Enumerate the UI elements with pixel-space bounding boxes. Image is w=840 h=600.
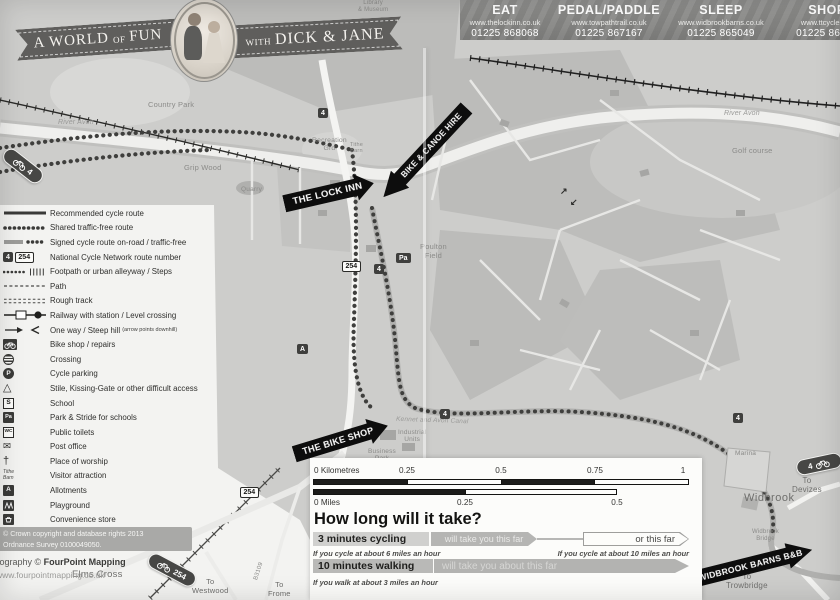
legend-item: Pa Park & Stride for schools bbox=[3, 410, 215, 425]
label-to-devizes: To Devizes bbox=[792, 476, 822, 494]
legend-item: A Allotments bbox=[3, 483, 215, 498]
legend-item: One way / Steep hill (arrow points downh… bbox=[3, 323, 215, 338]
contact-eat: EAT www.thelockinn.co.uk 01225 868068 bbox=[460, 0, 550, 40]
park-stride-badge: Pa bbox=[396, 253, 411, 263]
legend-label: Public toilets bbox=[50, 428, 94, 437]
legend-label: One way / Steep hill bbox=[50, 326, 120, 335]
legend-label: Visitor attraction bbox=[50, 471, 106, 480]
crown-copyright-line2: Ordnance Survey 0100049050. bbox=[3, 540, 192, 551]
bicycle-icon bbox=[156, 559, 173, 574]
legend-label: Cycle parking bbox=[50, 369, 98, 378]
legend-item: Bike shop / repairs bbox=[3, 337, 215, 352]
legend-label: Park & Stride for schools bbox=[50, 413, 137, 422]
legend-item: Railway with station / Level crossing bbox=[3, 308, 215, 323]
recommended-route-line-icon bbox=[3, 208, 50, 218]
legend-item: Rough track bbox=[3, 294, 215, 309]
cycling-note-right: If you cycle at about 10 miles an hour bbox=[540, 549, 689, 558]
legend-label: Post office bbox=[50, 442, 87, 451]
label-river-avon-east: River Avon bbox=[724, 110, 760, 118]
legend-label: Playground bbox=[50, 501, 90, 510]
legend-item: Signed cycle route on-road / traffic-fre… bbox=[3, 235, 215, 250]
legend-item: Playground bbox=[3, 498, 215, 513]
rough-track-line-icon bbox=[3, 296, 50, 306]
miles-scale-label: 0 Miles bbox=[314, 498, 340, 507]
contact-website: www.towpathtrail.co.uk bbox=[550, 18, 668, 27]
route-254-badge: 254 bbox=[342, 261, 361, 272]
label-grip-wood: Grip Wood bbox=[184, 164, 222, 173]
contact-phone: 01225 868068 bbox=[460, 28, 550, 39]
route-number: 254 bbox=[172, 567, 188, 581]
label-library-museum: Library & Museum bbox=[358, 0, 388, 14]
contact-phone: 01225 86718 bbox=[774, 28, 840, 39]
scale-and-timing-panel: 0 Kilometres 0.25 0.5 0.75 1 0 Miles 0.2… bbox=[310, 458, 702, 600]
km-scalebar bbox=[313, 479, 689, 485]
cycling-note-left: If you cycle at about 6 miles an hour bbox=[313, 549, 440, 558]
girl-dress bbox=[203, 33, 225, 63]
stile-warning-icon: △ bbox=[3, 383, 50, 394]
ncn-route-4-badge: 4 bbox=[440, 409, 450, 419]
label-river-avon-west: River Avon bbox=[58, 119, 94, 127]
footpath-steps-line-icon bbox=[3, 267, 50, 277]
cartography-credit: tography © FourPoint Mapping bbox=[0, 557, 126, 567]
legend-item: P Cycle parking bbox=[3, 367, 215, 382]
route-254-badge: 254 bbox=[240, 487, 259, 498]
miles-scalebar bbox=[313, 489, 617, 495]
legend-item: WC Public toilets bbox=[3, 425, 215, 440]
label-widbrook-bridge: Widbrook Bridge bbox=[752, 529, 779, 543]
legend-label: National Cycle Network route number bbox=[50, 253, 181, 262]
label-tithe-barn: Tithe Barn bbox=[350, 142, 363, 155]
bike-shop-icon bbox=[3, 339, 50, 350]
cycling-distance-arrow: will take you this far bbox=[431, 532, 537, 546]
banner-text-of: OF bbox=[113, 32, 126, 45]
contact-website: www.widbrookbarns.co.uk bbox=[668, 18, 774, 27]
place-of-worship-cross-icon: † bbox=[3, 456, 50, 467]
fourpoint-website: www.fourpointmapping.co.uk bbox=[0, 570, 105, 580]
banner-text-names: DICK & JANE bbox=[274, 25, 384, 49]
ncn-route-4-badge: 4 bbox=[733, 413, 743, 423]
legend-label: Shared traffic-free route bbox=[50, 223, 133, 232]
cycling-time-band: 3 minutes cycling bbox=[313, 532, 429, 546]
contact-header-strip: EAT www.thelockinn.co.uk 01225 868068 PE… bbox=[460, 0, 840, 40]
legend-item: Path bbox=[3, 279, 215, 294]
railway-station-line-icon bbox=[3, 310, 50, 320]
ncn-route-4-badge: 4 bbox=[374, 264, 384, 274]
crown-copyright-line1: © Crown copyright and database rights 20… bbox=[3, 529, 192, 540]
crown-copyright-box: © Crown copyright and database rights 20… bbox=[0, 527, 192, 551]
dick-and-jane-vignette bbox=[170, 0, 238, 82]
playground-icon bbox=[3, 500, 50, 511]
cycle-parking-icon: P bbox=[3, 368, 50, 379]
legend-item: Recommended cycle route bbox=[3, 206, 215, 221]
boy-body bbox=[184, 26, 202, 60]
km-tick: 0.25 bbox=[392, 466, 422, 475]
contact-title: EAT bbox=[460, 3, 550, 17]
legend-label: Allotments bbox=[50, 486, 87, 495]
arrow-connector-line bbox=[537, 538, 583, 540]
allotments-icon: A bbox=[3, 485, 50, 496]
legend-label: Footpath or urban alleyway / Steps bbox=[50, 267, 172, 276]
label-recreation-ground: Recreation Grd bbox=[312, 137, 347, 153]
allotments-badge: A bbox=[297, 344, 308, 354]
contact-website: www.ttcycles.co bbox=[774, 18, 840, 27]
path-line-icon bbox=[3, 281, 50, 291]
miles-tick: 0.5 bbox=[602, 498, 632, 507]
legend-item: S School bbox=[3, 396, 215, 411]
legend-label: School bbox=[50, 399, 74, 408]
miles-tick: 0.25 bbox=[450, 498, 480, 507]
bicycle-icon bbox=[11, 156, 28, 172]
legend-label: Rough track bbox=[50, 296, 93, 305]
banner-text-with: WITH bbox=[245, 34, 271, 47]
legend-item: Crossing bbox=[3, 352, 215, 367]
contact-phone: 01225 867167 bbox=[550, 28, 668, 39]
contact-pedal-paddle: PEDAL/PADDLE www.towpathtrail.co.uk 0122… bbox=[550, 0, 668, 40]
cycling-far-arrow-outline: or this far bbox=[583, 532, 689, 546]
cycling-far-arrow: or this far bbox=[584, 533, 688, 545]
contact-phone: 01225 865049 bbox=[668, 28, 774, 39]
shared-route-beaded-line-icon bbox=[3, 223, 50, 233]
legend-item: Tithe Barn Visitor attraction bbox=[3, 469, 215, 484]
legend-item: ✉ Post office bbox=[3, 440, 215, 455]
oneway-arrow-icon: ↙ bbox=[570, 197, 578, 208]
legend-item: △ Stile, Kissing-Gate or other difficult… bbox=[3, 381, 215, 396]
signed-route-line-icon bbox=[3, 237, 50, 247]
legend-label: Stile, Kissing-Gate or other difficult a… bbox=[50, 384, 198, 393]
legend-item: Footpath or urban alleyway / Steps bbox=[3, 264, 215, 279]
route-number: 4 bbox=[26, 167, 35, 177]
legend-label: Place of worship bbox=[50, 457, 108, 466]
school-icon: S bbox=[3, 398, 50, 409]
contact-title: SLEEP bbox=[668, 3, 774, 17]
km-tick: 0.75 bbox=[580, 466, 610, 475]
legend-label: Signed cycle route on-road / traffic-fre… bbox=[50, 238, 186, 247]
crossing-icon bbox=[3, 354, 50, 365]
banner-text: A WORLD bbox=[33, 30, 109, 52]
convenience-store-icon bbox=[3, 514, 50, 525]
cycle-map-page: Country Park Grip Wood Quarry Recreation… bbox=[0, 0, 840, 600]
ncn-number-badges-icon: 4 254 bbox=[3, 252, 50, 263]
how-long-title: How long will it take? bbox=[314, 510, 482, 529]
legend-label: Railway with station / Level crossing bbox=[50, 311, 176, 320]
walking-time-band: 10 minutes walking bbox=[313, 559, 433, 573]
map-legend: Recommended cycle route Shared traffic-f… bbox=[3, 206, 215, 542]
legend-label: Recommended cycle route bbox=[50, 209, 144, 218]
cartography-prefix: tography © bbox=[0, 557, 44, 567]
ncn-4-badge: 4 bbox=[3, 252, 13, 262]
contact-title: PEDAL/PADDLE bbox=[550, 3, 668, 17]
label-country-park: Country Park bbox=[148, 101, 194, 110]
contact-title: SHOP bbox=[774, 3, 840, 17]
legend-item: † Place of worship bbox=[3, 454, 215, 469]
legend-item: 4 254 National Cycle Network route numbe… bbox=[3, 250, 215, 265]
legend-label: Path bbox=[50, 282, 66, 291]
km-tick: 0.5 bbox=[486, 466, 516, 475]
label-quarry: Quarry bbox=[241, 186, 262, 193]
km-scale-label: 0 Kilometres bbox=[314, 466, 360, 475]
label-golf-course: Golf course bbox=[732, 147, 773, 156]
oneway-steep-hill-icon bbox=[3, 325, 50, 335]
label-to-frome: To Frome bbox=[268, 581, 291, 598]
cartography-name: FourPoint Mapping bbox=[44, 557, 126, 567]
label-widbrook: Widbrook bbox=[744, 492, 794, 505]
public-toilets-icon: WC bbox=[3, 427, 50, 438]
contact-shop: SHOP www.ttcycles.co 01225 86718 bbox=[774, 0, 840, 40]
legend-label: Convenience store bbox=[50, 515, 116, 524]
ncn-route-4-badge: 4 bbox=[318, 108, 328, 118]
oneway-arrow-icon: ↗ bbox=[560, 186, 568, 197]
label-to-westwood: To Westwood bbox=[192, 578, 228, 595]
boy-illustration bbox=[188, 13, 201, 26]
contact-sleep: SLEEP www.widbrookbarns.co.uk 01225 8650… bbox=[668, 0, 774, 40]
legend-item: Convenience store bbox=[3, 512, 215, 527]
contact-website: www.thelockinn.co.uk bbox=[460, 18, 550, 27]
legend-label: Bike shop / repairs bbox=[50, 340, 115, 349]
route-number: 4 bbox=[807, 461, 813, 471]
legend-item: Shared traffic-free route bbox=[3, 221, 215, 236]
ncn-254-badge: 254 bbox=[15, 252, 34, 263]
legend-label-note: (arrow points downhill) bbox=[122, 327, 177, 333]
visitor-attraction-icon: Tithe Barn bbox=[3, 470, 50, 481]
walking-note: If you walk at about 3 miles an hour bbox=[313, 578, 438, 587]
walking-distance-arrow: will take you about this far bbox=[434, 559, 689, 573]
post-office-envelope-icon: ✉ bbox=[3, 442, 50, 452]
km-tick: 1 bbox=[668, 466, 698, 475]
girl-illustration bbox=[208, 21, 220, 33]
label-marina: Marina bbox=[735, 450, 756, 457]
banner-text: FUN bbox=[129, 27, 163, 46]
legend-label: Crossing bbox=[50, 355, 81, 364]
bicycle-icon bbox=[814, 457, 831, 469]
park-and-stride-icon: Pa bbox=[3, 412, 50, 423]
